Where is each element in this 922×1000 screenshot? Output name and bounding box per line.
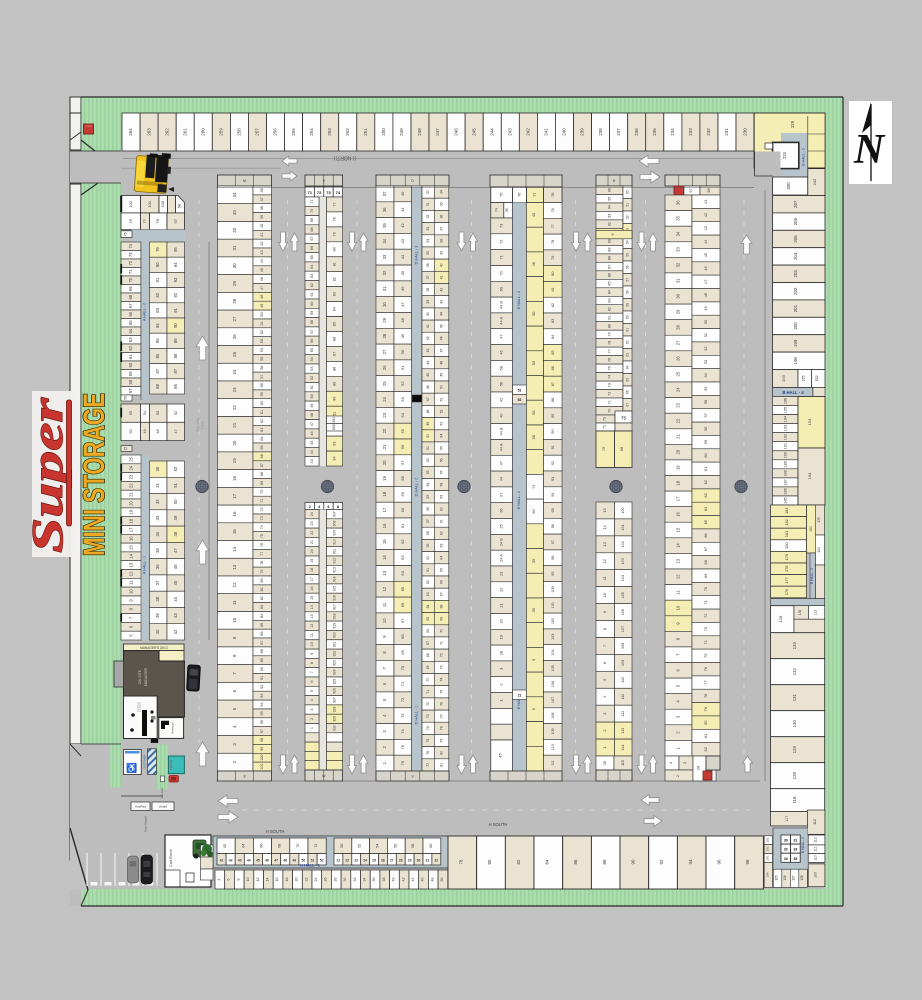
svg-text:61: 61 xyxy=(703,467,708,471)
svg-text:57: 57 xyxy=(440,470,444,474)
svg-text:56: 56 xyxy=(440,458,444,462)
svg-text:55: 55 xyxy=(440,446,444,450)
svg-text:31: 31 xyxy=(426,859,430,863)
svg-text:50: 50 xyxy=(173,499,178,504)
svg-text:59: 59 xyxy=(426,544,430,548)
svg-text:18: 18 xyxy=(129,518,134,523)
svg-text:48: 48 xyxy=(155,429,160,433)
svg-text:30: 30 xyxy=(426,190,430,194)
svg-text:231: 231 xyxy=(724,128,729,136)
svg-text:24 B: 24 B xyxy=(499,538,504,546)
svg-text:70: 70 xyxy=(400,665,405,670)
svg-text:44: 44 xyxy=(426,361,430,365)
svg-text:100: 100 xyxy=(621,507,625,513)
svg-text:58: 58 xyxy=(411,844,415,848)
svg-text:24: 24 xyxy=(314,878,318,882)
svg-text:(Auth): (Auth) xyxy=(159,805,167,809)
svg-text:22: 22 xyxy=(499,588,504,592)
svg-text:28: 28 xyxy=(232,298,237,303)
svg-text:49: 49 xyxy=(310,404,314,408)
svg-text:17: 17 xyxy=(382,507,387,512)
svg-text:48: 48 xyxy=(440,361,444,365)
svg-text:98: 98 xyxy=(551,556,555,560)
svg-text:94: 94 xyxy=(333,456,337,460)
svg-text:57: 57 xyxy=(260,374,264,378)
svg-text:44: 44 xyxy=(440,312,444,316)
svg-text:37: 37 xyxy=(155,580,160,585)
svg-text:44 A: 44 A xyxy=(499,317,504,325)
svg-text:11: 11 xyxy=(129,580,134,585)
svg-text:44: 44 xyxy=(247,859,251,863)
svg-text:45: 45 xyxy=(260,268,264,272)
svg-text:41: 41 xyxy=(426,324,430,328)
svg-text:8: 8 xyxy=(310,662,314,664)
svg-text:8: 8 xyxy=(244,775,246,779)
svg-text:32: 32 xyxy=(382,270,387,275)
svg-text:89: 89 xyxy=(173,338,178,343)
svg-text:71: 71 xyxy=(307,190,312,195)
svg-text:94: 94 xyxy=(173,262,178,267)
svg-text:81: 81 xyxy=(155,277,160,282)
svg-text:58: 58 xyxy=(128,379,133,384)
svg-text:234: 234 xyxy=(670,128,675,136)
svg-text:90: 90 xyxy=(551,429,555,433)
svg-text:69: 69 xyxy=(703,574,708,578)
svg-text:89: 89 xyxy=(333,382,337,386)
svg-text:9: 9 xyxy=(602,611,607,613)
svg-text:6: 6 xyxy=(227,879,231,881)
svg-text:Entry Keypad: Entry Keypad xyxy=(144,816,148,832)
svg-text:90: 90 xyxy=(608,239,612,243)
svg-text:242: 242 xyxy=(812,178,817,185)
svg-text:90: 90 xyxy=(631,859,636,864)
svg-text:3: 3 xyxy=(310,708,314,710)
svg-text:154: 154 xyxy=(807,418,812,425)
svg-text:72: 72 xyxy=(400,697,405,702)
svg-text:86: 86 xyxy=(551,366,555,370)
svg-text:118: 118 xyxy=(792,796,797,803)
svg-text:71: 71 xyxy=(703,600,708,604)
svg-text:45: 45 xyxy=(440,324,444,328)
svg-text:75: 75 xyxy=(260,534,264,538)
svg-text:13: 13 xyxy=(676,558,681,563)
svg-text:56: 56 xyxy=(532,410,536,414)
svg-text:9: 9 xyxy=(611,234,615,236)
svg-text:240: 240 xyxy=(562,128,567,136)
svg-text:44: 44 xyxy=(411,878,415,882)
svg-text:H SOUTH: H SOUTH xyxy=(489,822,508,827)
svg-text:61: 61 xyxy=(626,328,630,332)
svg-text:19: 19 xyxy=(232,458,237,463)
svg-text:31: 31 xyxy=(382,286,387,291)
svg-text:39: 39 xyxy=(260,215,264,219)
svg-text:92: 92 xyxy=(260,685,264,689)
svg-text:910: 910 xyxy=(333,539,337,545)
svg-text:103: 103 xyxy=(551,634,555,640)
svg-text:9: 9 xyxy=(310,653,314,655)
svg-text:233: 233 xyxy=(688,128,693,136)
svg-text:58: 58 xyxy=(400,476,405,481)
svg-text:73: 73 xyxy=(128,252,133,257)
svg-text:17: 17 xyxy=(676,496,681,501)
svg-text:181: 181 xyxy=(784,531,789,538)
svg-text:929: 929 xyxy=(333,716,337,722)
svg-text:928: 928 xyxy=(333,707,337,713)
svg-text:204: 204 xyxy=(793,252,798,260)
svg-text:42: 42 xyxy=(499,398,504,402)
svg-text:22: 22 xyxy=(124,447,128,451)
svg-text:7: 7 xyxy=(602,645,607,647)
svg-text:62: 62 xyxy=(626,340,630,344)
svg-text:78: 78 xyxy=(155,218,160,223)
svg-text:200: 200 xyxy=(786,182,791,190)
svg-text:91: 91 xyxy=(333,412,337,416)
svg-text:62: 62 xyxy=(703,480,708,484)
svg-text:16: 16 xyxy=(232,511,237,516)
svg-text:60: 60 xyxy=(128,362,133,367)
svg-text:49: 49 xyxy=(703,306,708,310)
svg-text:85: 85 xyxy=(333,322,337,326)
svg-text:133: 133 xyxy=(792,642,797,650)
svg-text:66: 66 xyxy=(128,311,133,316)
svg-text:24 A: 24 A xyxy=(499,554,504,562)
svg-text:56: 56 xyxy=(499,382,504,386)
svg-text:73: 73 xyxy=(499,224,504,228)
svg-text:919: 919 xyxy=(333,623,337,629)
svg-text:81: 81 xyxy=(608,315,612,319)
svg-text:263: 263 xyxy=(146,128,151,136)
svg-text:57: 57 xyxy=(310,329,314,333)
svg-text:79: 79 xyxy=(260,569,264,573)
svg-text:64: 64 xyxy=(400,570,405,575)
svg-text:194: 194 xyxy=(783,416,787,422)
svg-text:56: 56 xyxy=(124,396,128,400)
svg-text:30: 30 xyxy=(382,302,387,307)
svg-text:89: 89 xyxy=(608,247,612,251)
svg-text:43: 43 xyxy=(703,226,708,230)
svg-text:254: 254 xyxy=(309,128,314,136)
svg-text:97: 97 xyxy=(551,540,555,544)
svg-text:62: 62 xyxy=(400,539,405,544)
svg-text:67: 67 xyxy=(400,618,405,623)
svg-text:908: 908 xyxy=(333,521,337,527)
svg-text:56: 56 xyxy=(260,366,264,370)
svg-text:33: 33 xyxy=(793,848,797,852)
svg-text:37: 37 xyxy=(426,275,430,279)
svg-text:55: 55 xyxy=(310,348,314,352)
svg-text:65: 65 xyxy=(703,520,708,524)
svg-text:71: 71 xyxy=(310,199,314,203)
svg-text:41: 41 xyxy=(220,859,224,863)
svg-text:52: 52 xyxy=(703,346,708,350)
svg-text:18: 18 xyxy=(232,476,237,481)
svg-text:55: 55 xyxy=(426,495,430,499)
svg-text:88: 88 xyxy=(173,353,178,358)
svg-text:96: 96 xyxy=(717,859,722,864)
svg-text:35: 35 xyxy=(155,548,160,553)
svg-text:25: 25 xyxy=(382,381,387,386)
svg-text:75: 75 xyxy=(440,690,444,694)
svg-text:2: 2 xyxy=(499,684,504,686)
svg-text:193: 193 xyxy=(783,425,787,431)
svg-text:28: 28 xyxy=(333,878,337,882)
svg-text:78: 78 xyxy=(260,561,264,565)
svg-text:11: 11 xyxy=(382,602,387,607)
svg-text:26: 26 xyxy=(324,878,328,882)
svg-text:68: 68 xyxy=(620,447,624,451)
svg-text:152: 152 xyxy=(815,376,819,382)
svg-text:15: 15 xyxy=(129,545,134,550)
svg-text:71: 71 xyxy=(440,641,444,645)
svg-text:53: 53 xyxy=(426,470,430,474)
svg-text:45: 45 xyxy=(703,253,708,257)
svg-text:94: 94 xyxy=(551,492,555,496)
svg-text:34: 34 xyxy=(784,857,788,861)
svg-text:921: 921 xyxy=(333,641,337,647)
svg-text:112: 112 xyxy=(814,837,818,843)
svg-text:251: 251 xyxy=(363,128,368,136)
svg-text:20: 20 xyxy=(295,878,299,882)
svg-text:79: 79 xyxy=(703,707,708,711)
svg-text:77: 77 xyxy=(260,552,264,556)
svg-text:34: 34 xyxy=(363,878,367,882)
svg-text:34: 34 xyxy=(676,231,681,236)
svg-text:63: 63 xyxy=(426,592,430,596)
svg-text:Exit Gate: Exit Gate xyxy=(160,787,164,798)
svg-text:202: 202 xyxy=(793,287,798,295)
svg-text:17: 17 xyxy=(129,527,134,532)
svg-text:43: 43 xyxy=(238,859,242,863)
svg-text:188: 188 xyxy=(783,470,787,476)
svg-text:179: 179 xyxy=(784,554,789,561)
svg-text:50: 50 xyxy=(310,394,314,398)
svg-text:12: 12 xyxy=(256,878,260,882)
svg-text:70: 70 xyxy=(260,490,264,494)
svg-text:36: 36 xyxy=(372,878,376,882)
svg-text:85: 85 xyxy=(260,623,264,627)
svg-text:1: 1 xyxy=(602,746,607,748)
svg-text:60: 60 xyxy=(310,302,314,306)
svg-text:12: 12 xyxy=(129,571,134,576)
svg-text:51: 51 xyxy=(173,482,178,487)
svg-text:62: 62 xyxy=(128,345,133,350)
svg-text:42: 42 xyxy=(260,241,264,245)
svg-text:109: 109 xyxy=(551,728,555,734)
svg-text:46: 46 xyxy=(260,277,264,281)
svg-text:23: 23 xyxy=(310,521,314,525)
svg-text:69: 69 xyxy=(310,218,314,222)
svg-text:63: 63 xyxy=(128,337,133,342)
svg-text:98: 98 xyxy=(178,204,182,208)
svg-text:36: 36 xyxy=(440,215,444,219)
svg-text:96: 96 xyxy=(505,208,509,212)
svg-text:98: 98 xyxy=(260,738,264,742)
svg-text:87: 87 xyxy=(260,640,264,644)
svg-text:16: 16 xyxy=(310,586,314,590)
svg-text:39: 39 xyxy=(155,613,160,618)
svg-text:232: 232 xyxy=(706,128,711,136)
svg-text:42: 42 xyxy=(703,213,708,217)
svg-text:35: 35 xyxy=(440,202,444,206)
svg-text:12: 12 xyxy=(232,582,237,587)
svg-text:205: 205 xyxy=(793,235,798,243)
svg-text:51: 51 xyxy=(310,385,314,389)
svg-text:49: 49 xyxy=(440,373,444,377)
svg-text:185: 185 xyxy=(783,497,787,503)
svg-text:74: 74 xyxy=(440,678,444,682)
svg-text:6: 6 xyxy=(328,505,330,509)
svg-text:150: 150 xyxy=(809,526,813,532)
svg-text:83: 83 xyxy=(551,319,555,323)
svg-text:40: 40 xyxy=(260,224,264,228)
svg-text:918: 918 xyxy=(333,614,337,620)
svg-text:245: 245 xyxy=(471,128,476,136)
svg-text:60: 60 xyxy=(626,315,630,319)
svg-text:23: 23 xyxy=(382,412,387,417)
svg-text:249: 249 xyxy=(399,128,404,136)
svg-text:262: 262 xyxy=(164,128,169,136)
svg-text:922: 922 xyxy=(333,651,337,657)
svg-text:♿: ♿ xyxy=(126,762,137,773)
svg-text:80: 80 xyxy=(333,247,337,251)
svg-text:106: 106 xyxy=(783,875,787,881)
svg-text:29: 29 xyxy=(676,309,681,314)
svg-text:90: 90 xyxy=(333,397,337,401)
svg-text:65: 65 xyxy=(128,320,133,325)
svg-text:44: 44 xyxy=(260,259,264,263)
svg-text:92: 92 xyxy=(608,222,612,226)
svg-text:88: 88 xyxy=(551,398,555,402)
svg-text:235: 235 xyxy=(652,128,657,136)
svg-text:53: 53 xyxy=(703,360,708,364)
svg-text:13: 13 xyxy=(232,564,237,569)
svg-text:38: 38 xyxy=(260,206,264,210)
svg-text:59: 59 xyxy=(400,491,405,496)
svg-text:83: 83 xyxy=(333,292,337,296)
svg-text:58: 58 xyxy=(426,531,430,535)
svg-text:5: 5 xyxy=(532,708,536,710)
svg-text:30: 30 xyxy=(232,263,237,268)
svg-text:41: 41 xyxy=(260,233,264,237)
svg-text:22: 22 xyxy=(310,531,314,535)
svg-text:63: 63 xyxy=(310,274,314,278)
svg-text:111: 111 xyxy=(814,847,818,852)
svg-text:31: 31 xyxy=(793,839,797,843)
svg-text:911: 911 xyxy=(333,549,337,555)
svg-text:237: 237 xyxy=(616,128,621,136)
svg-text:58: 58 xyxy=(499,366,504,370)
svg-text:71: 71 xyxy=(426,690,430,694)
svg-text:29: 29 xyxy=(697,766,701,770)
svg-text:72: 72 xyxy=(260,507,264,511)
svg-text:51: 51 xyxy=(440,397,444,401)
svg-text:93: 93 xyxy=(551,477,555,481)
svg-text:71: 71 xyxy=(260,499,264,503)
svg-text:21: 21 xyxy=(676,434,681,439)
svg-text:65: 65 xyxy=(626,378,630,382)
svg-text:87: 87 xyxy=(608,264,612,268)
svg-text:114: 114 xyxy=(621,745,625,751)
svg-text:62: 62 xyxy=(260,419,264,423)
svg-text:42: 42 xyxy=(401,878,405,882)
svg-text:87: 87 xyxy=(551,382,555,386)
svg-text:68: 68 xyxy=(310,227,314,231)
svg-text:36: 36 xyxy=(382,207,387,212)
svg-text:78: 78 xyxy=(459,859,464,864)
svg-text:229: 229 xyxy=(790,120,795,128)
svg-text:31: 31 xyxy=(676,278,681,283)
svg-text:68: 68 xyxy=(128,294,133,299)
svg-text:48: 48 xyxy=(260,295,264,299)
svg-text:41: 41 xyxy=(703,200,708,204)
svg-text:105: 105 xyxy=(551,665,555,671)
svg-text:30: 30 xyxy=(343,878,347,882)
svg-text:64: 64 xyxy=(241,844,245,848)
svg-text:107: 107 xyxy=(621,626,625,632)
svg-text:88: 88 xyxy=(333,367,337,371)
svg-text:84: 84 xyxy=(260,614,264,618)
svg-text:50: 50 xyxy=(340,844,344,848)
svg-text:100: 100 xyxy=(260,755,264,761)
svg-text:64: 64 xyxy=(128,328,133,333)
svg-text:100: 100 xyxy=(551,586,555,592)
svg-text:67: 67 xyxy=(426,641,430,645)
svg-text:50: 50 xyxy=(426,434,430,438)
svg-text:15: 15 xyxy=(676,527,681,532)
svg-text:38: 38 xyxy=(382,878,386,882)
svg-text:207: 207 xyxy=(793,200,798,208)
svg-text:93: 93 xyxy=(260,694,264,698)
svg-text:63: 63 xyxy=(440,544,444,548)
svg-text:48: 48 xyxy=(532,262,536,266)
svg-text:11: 11 xyxy=(310,633,314,637)
svg-text:85: 85 xyxy=(551,350,555,354)
svg-text:182: 182 xyxy=(784,519,789,526)
svg-text:49: 49 xyxy=(426,422,430,426)
svg-text:57: 57 xyxy=(128,388,133,393)
svg-text:85: 85 xyxy=(155,338,160,343)
svg-text:50: 50 xyxy=(400,349,405,354)
svg-text:30: 30 xyxy=(417,859,421,863)
svg-text:72: 72 xyxy=(314,844,318,848)
svg-text:40: 40 xyxy=(440,263,444,267)
svg-text:76: 76 xyxy=(260,543,264,547)
svg-text:200: 200 xyxy=(793,322,798,330)
svg-text:35: 35 xyxy=(532,559,536,563)
svg-text:77: 77 xyxy=(142,218,147,223)
svg-text:18: 18 xyxy=(285,878,289,882)
svg-text:74: 74 xyxy=(608,375,612,379)
svg-text:47: 47 xyxy=(260,286,264,290)
svg-text:111: 111 xyxy=(551,760,555,766)
svg-text:70: 70 xyxy=(296,844,300,848)
svg-text:20: 20 xyxy=(676,449,681,454)
svg-text:103: 103 xyxy=(621,558,625,564)
svg-text:28: 28 xyxy=(676,325,681,330)
svg-text:183: 183 xyxy=(784,508,789,515)
svg-text:97: 97 xyxy=(173,218,178,223)
svg-text:21: 21 xyxy=(310,540,314,544)
svg-text:6: 6 xyxy=(602,662,607,664)
svg-text:73: 73 xyxy=(440,665,444,669)
svg-text:102: 102 xyxy=(128,200,133,207)
svg-text:35: 35 xyxy=(382,223,387,228)
svg-text:107: 107 xyxy=(551,697,555,703)
svg-text:102: 102 xyxy=(765,846,769,851)
svg-text:58: 58 xyxy=(310,320,314,324)
svg-text:23: 23 xyxy=(354,859,358,863)
svg-text:69: 69 xyxy=(400,649,405,654)
